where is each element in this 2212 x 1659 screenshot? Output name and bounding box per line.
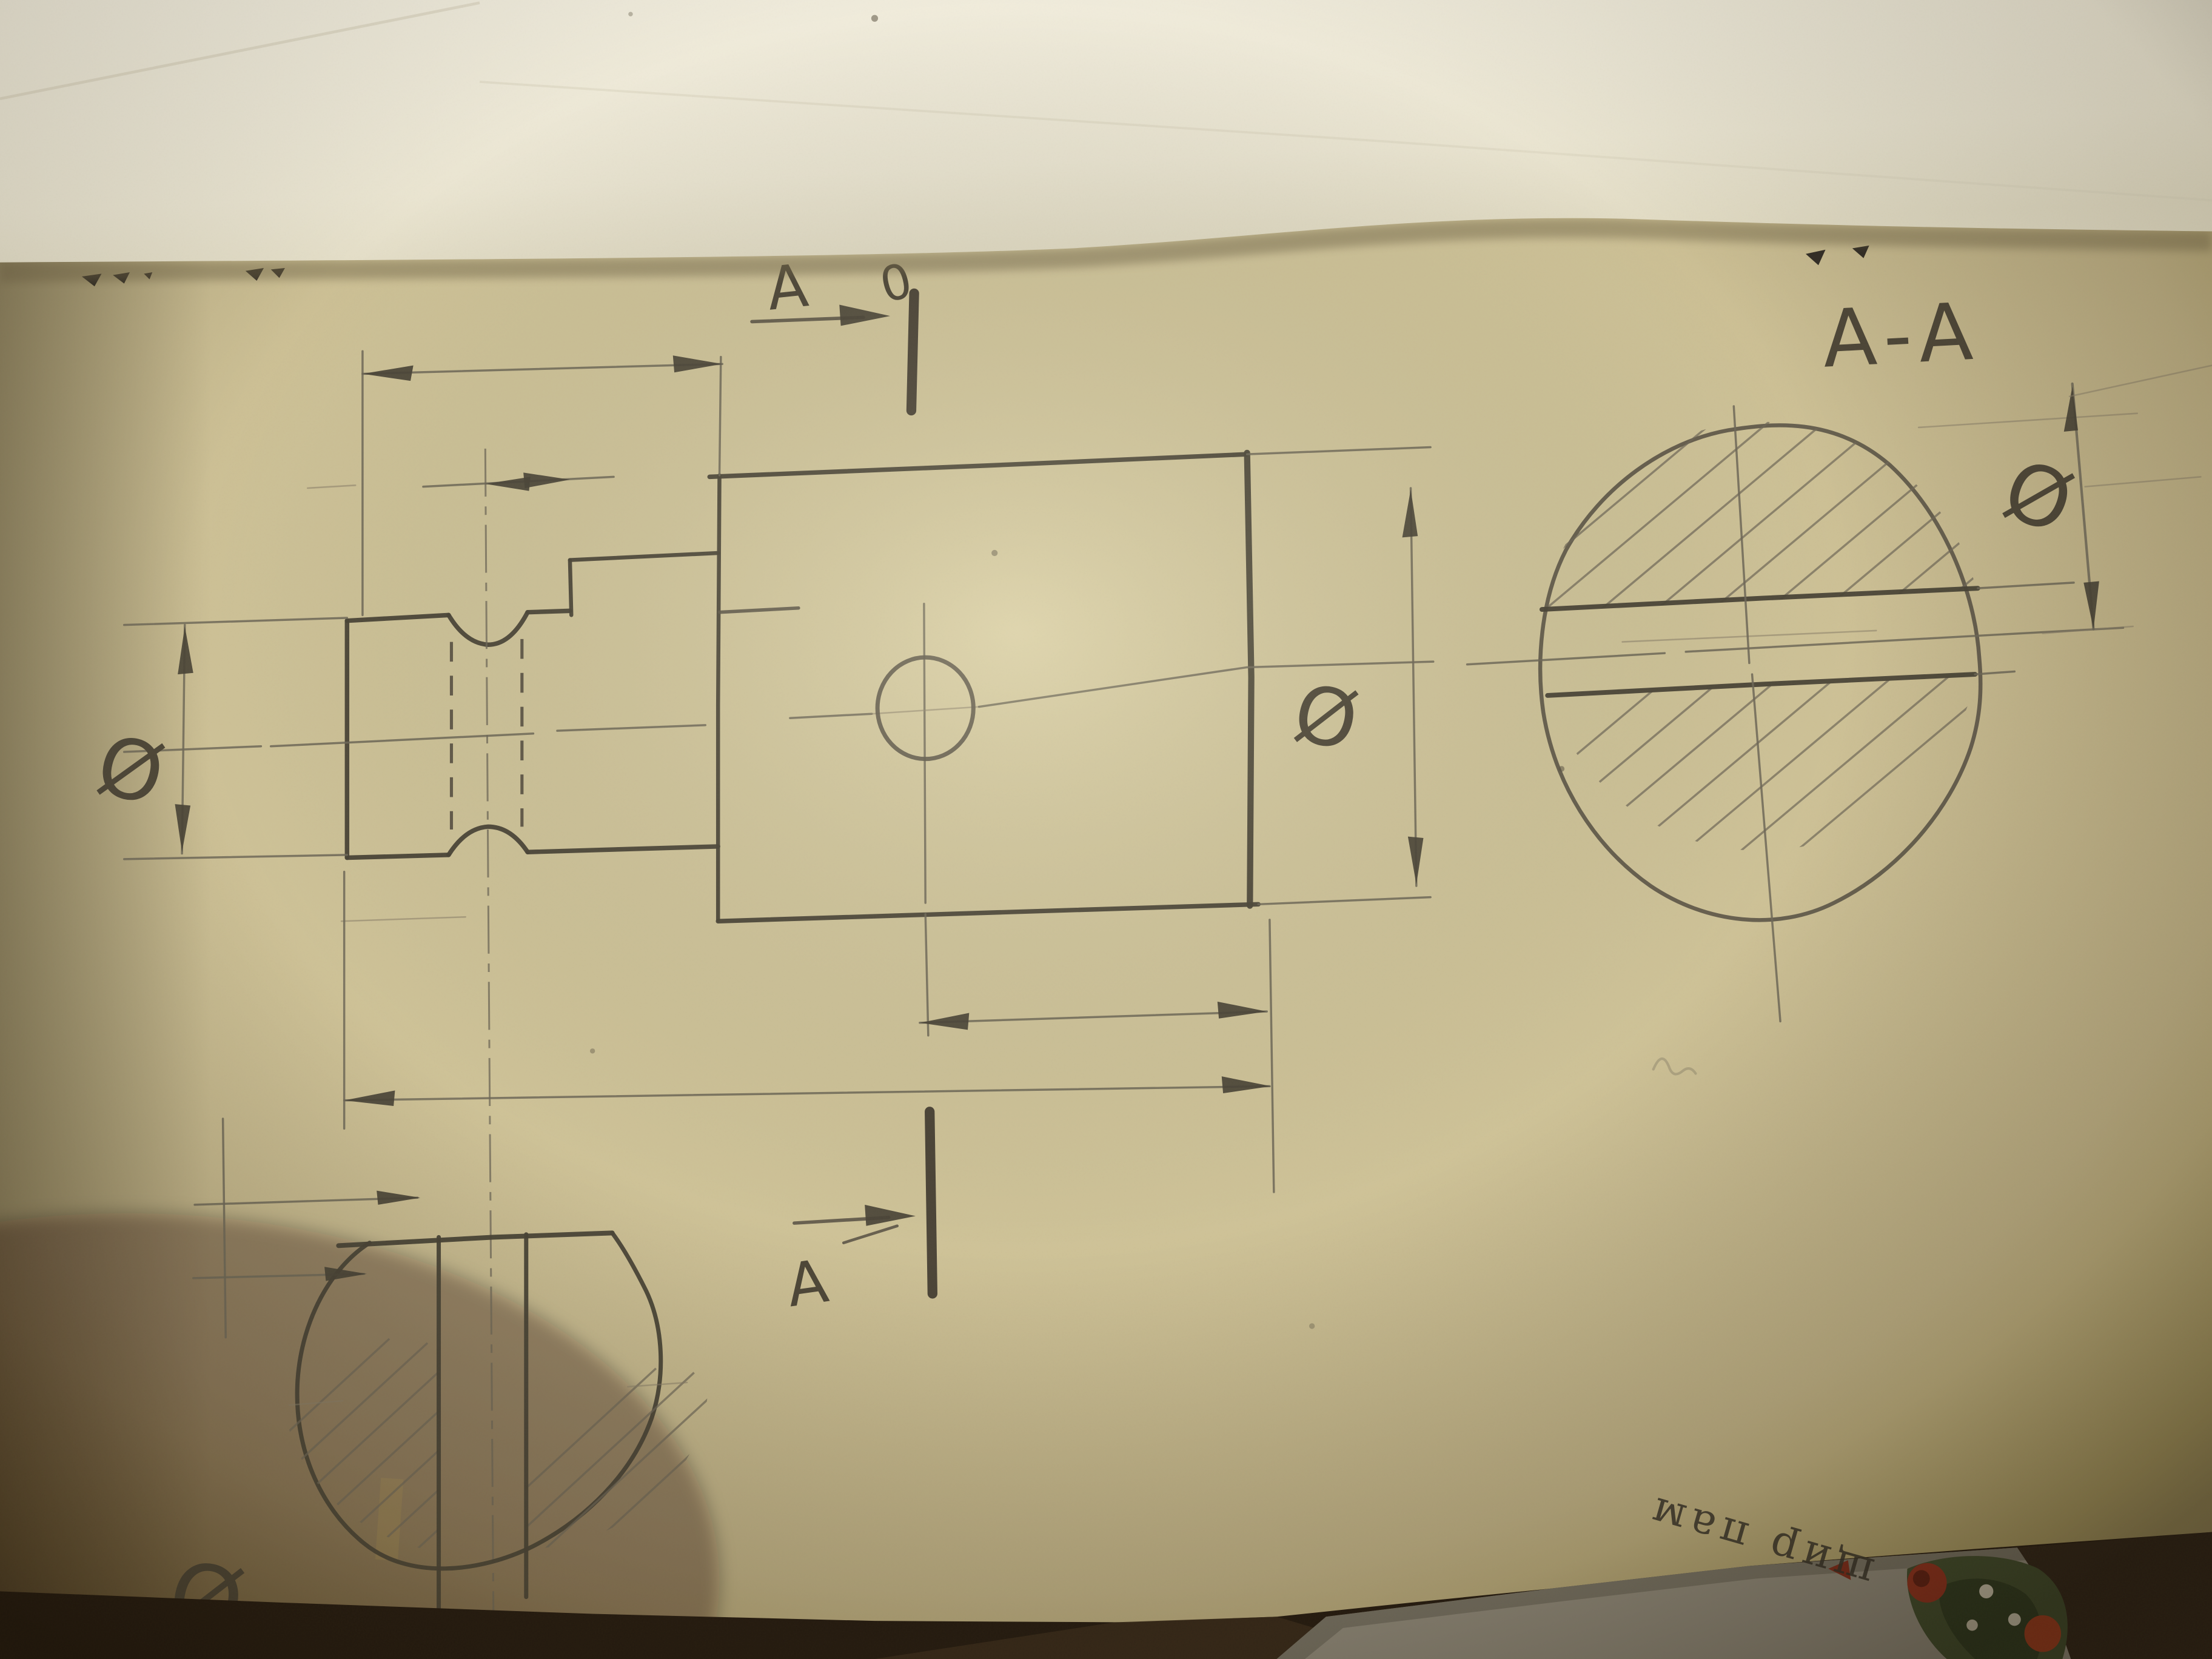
vignette <box>0 0 2212 1659</box>
photo-of-technical-drawing: Ø Ø <box>0 0 2212 1659</box>
